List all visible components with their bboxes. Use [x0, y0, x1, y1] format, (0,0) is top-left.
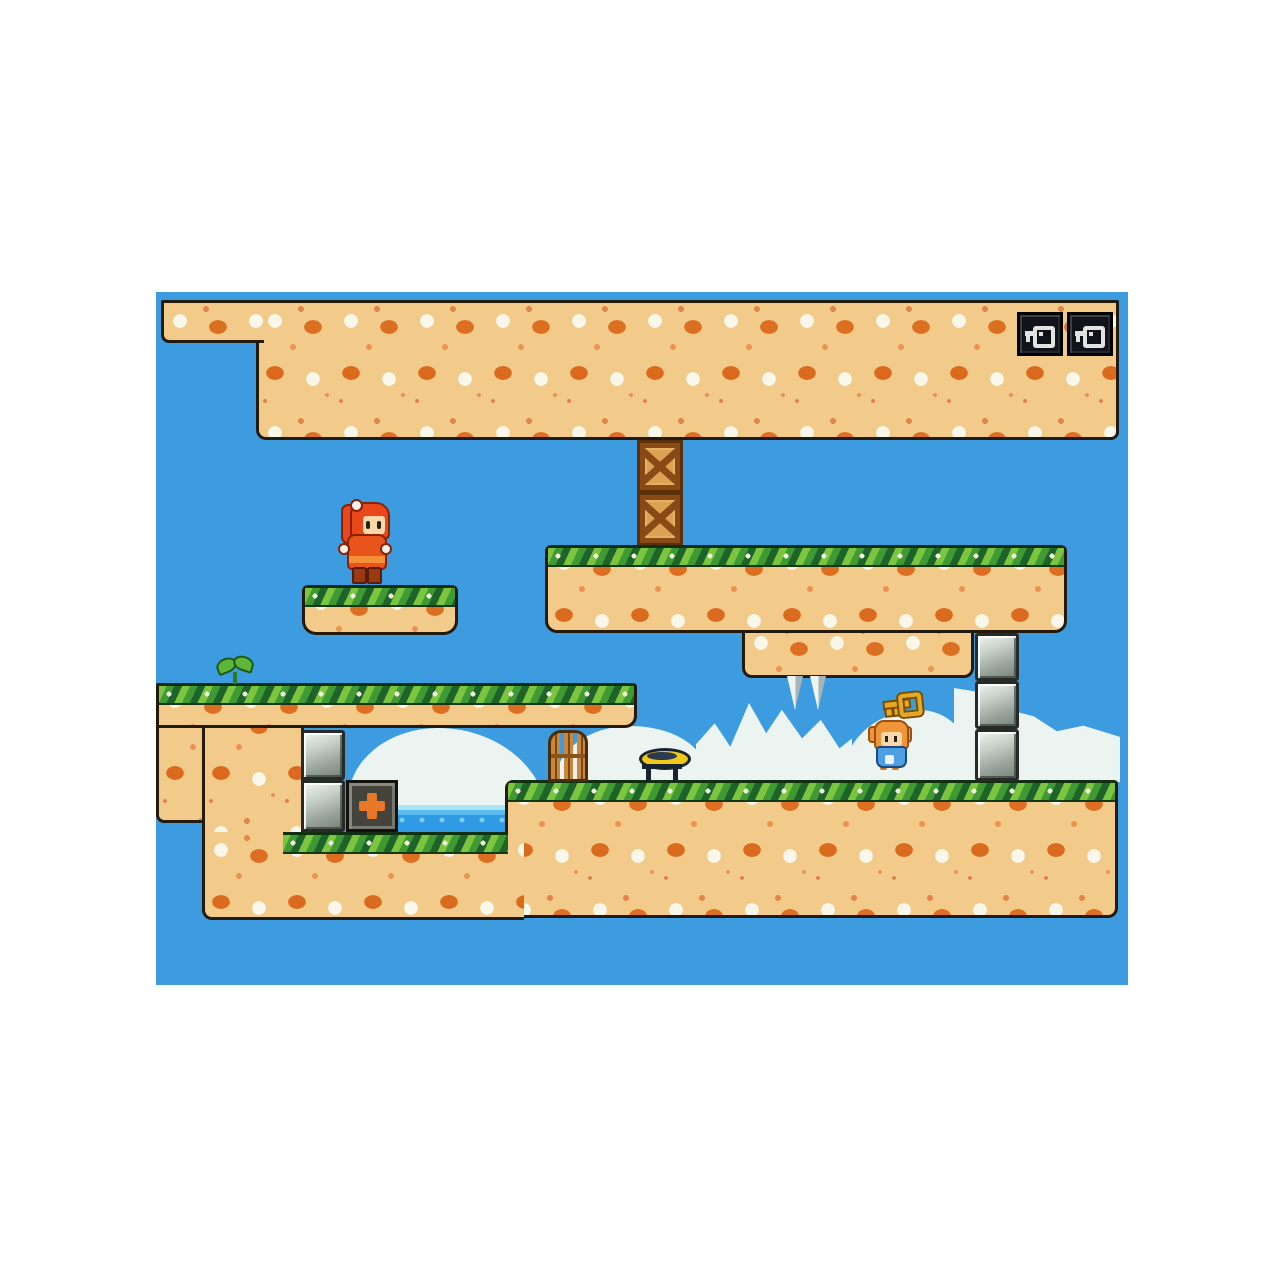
trampoline-leg [646, 767, 651, 781]
left-shelf [156, 683, 637, 728]
player-dress-stripe [349, 556, 385, 563]
game-viewport[interactable] [156, 292, 1128, 985]
plant-stem [233, 672, 237, 684]
hud-key-icon-2 [1067, 312, 1113, 356]
grass-top [159, 683, 634, 705]
stone-block-alcove-1 [301, 730, 345, 780]
plant-leaf [231, 653, 256, 674]
top-ceiling [256, 300, 1119, 440]
npc-eye [894, 736, 897, 742]
water-pool [396, 805, 508, 835]
key-ring [1033, 326, 1055, 348]
gate [548, 730, 588, 782]
small-floating-platform [302, 585, 458, 635]
stone-block-alcove-2 [301, 780, 345, 832]
spike-right [808, 676, 828, 710]
npc-eye [885, 736, 888, 742]
stone-block-column-2 [975, 681, 1019, 729]
plant-sprout [216, 656, 254, 684]
key-tooth [1026, 336, 1030, 342]
grass-top [283, 832, 508, 854]
grass-top [548, 545, 1064, 567]
player-hair-bobble [350, 499, 363, 512]
key-ring [898, 692, 923, 717]
spike-left [785, 676, 805, 710]
player-boot [352, 567, 367, 584]
top-ceiling-ledge [161, 300, 264, 343]
trampoline [638, 746, 690, 782]
player-hand [338, 543, 350, 555]
hud-key-icon-1 [1017, 312, 1063, 356]
stone-block-column-3 [975, 729, 1019, 781]
player-boot [367, 567, 382, 584]
trampoline-leg [673, 767, 678, 781]
grass-top [508, 780, 1115, 802]
alcove-floor [202, 832, 524, 920]
player-hand [380, 543, 392, 555]
cloud-peaks [696, 698, 852, 782]
npc-apron [885, 755, 894, 764]
grass-top [305, 585, 455, 607]
mid-platform [545, 545, 1067, 633]
crate-bottom [637, 492, 683, 546]
health-box [346, 780, 398, 832]
player-eye [377, 521, 381, 529]
trampoline-mat [647, 752, 677, 760]
key-tooth [886, 709, 892, 715]
key-ring [1083, 326, 1105, 348]
player-character [339, 496, 391, 586]
crate-top [637, 440, 683, 493]
main-ground [505, 780, 1118, 918]
player-eye [366, 521, 370, 529]
player-face [363, 516, 385, 535]
npc-dress [876, 746, 907, 768]
key-item [882, 692, 924, 720]
npc-face [881, 732, 902, 746]
key-tooth [1076, 336, 1080, 342]
stone-block-column-1 [975, 633, 1019, 681]
npc-character [868, 720, 912, 770]
